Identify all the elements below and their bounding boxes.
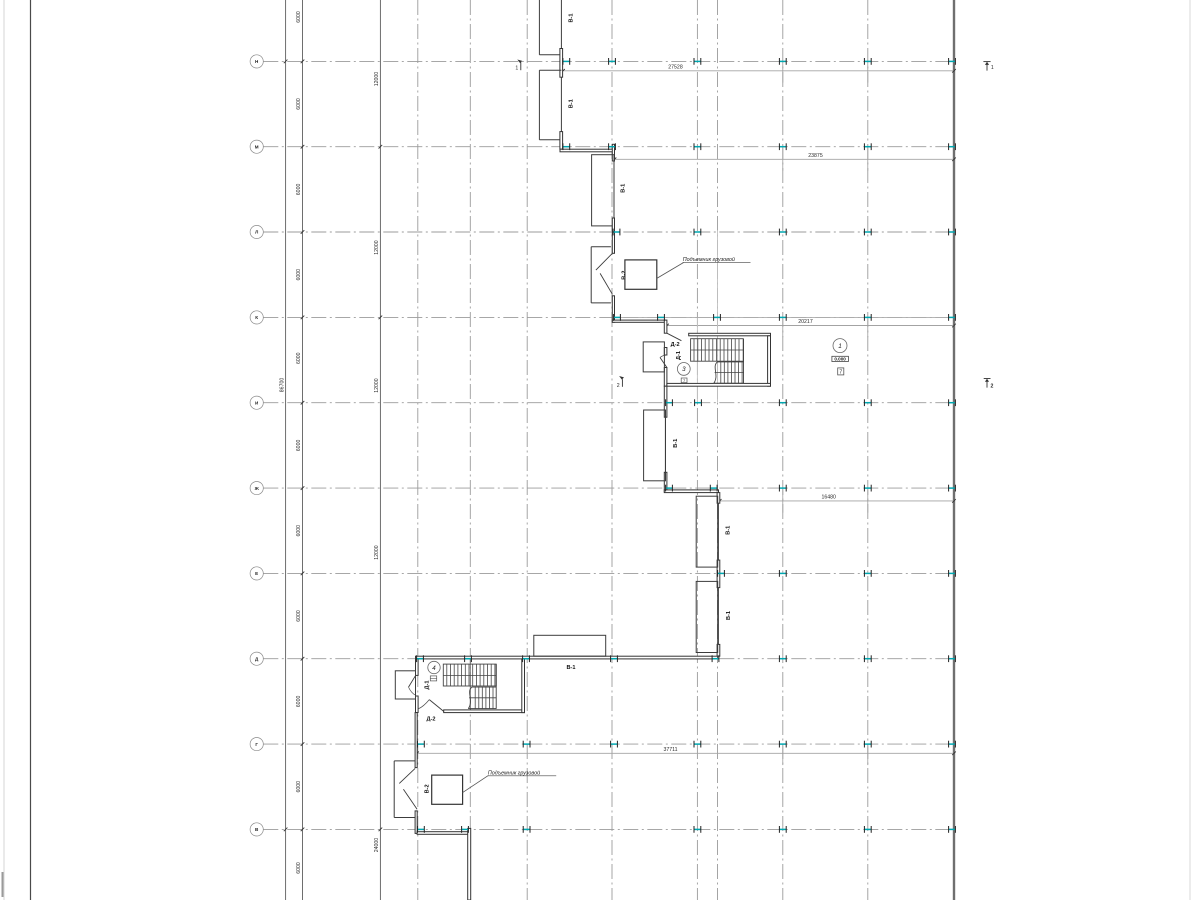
svg-text:6000: 6000 xyxy=(296,440,302,452)
svg-text:6000: 6000 xyxy=(296,352,302,364)
svg-text:16480: 16480 xyxy=(821,494,836,500)
svg-text:Д-1: Д-1 xyxy=(425,681,431,690)
svg-text:К: К xyxy=(255,315,258,320)
svg-text:20217: 20217 xyxy=(798,319,813,325)
svg-text:В-1: В-1 xyxy=(569,13,575,22)
svg-text:В-2: В-2 xyxy=(425,784,431,793)
svg-text:12000: 12000 xyxy=(374,240,380,255)
svg-text:7: 7 xyxy=(839,370,842,376)
svg-text:27528: 27528 xyxy=(668,64,683,70)
svg-text:3: 3 xyxy=(682,366,686,373)
svg-text:2: 2 xyxy=(991,383,994,389)
svg-text:Ж: Ж xyxy=(254,486,260,491)
svg-text:4: 4 xyxy=(432,665,436,672)
svg-text:12000: 12000 xyxy=(374,72,380,87)
svg-text:Д-2: Д-2 xyxy=(427,717,436,723)
svg-text:Подъемник грузовой: Подъемник грузовой xyxy=(488,769,540,776)
svg-text:М: М xyxy=(255,144,259,149)
svg-text:6000: 6000 xyxy=(296,525,302,537)
svg-text:6000: 6000 xyxy=(296,184,302,196)
svg-text:24000: 24000 xyxy=(374,838,380,853)
svg-text:6000: 6000 xyxy=(296,11,302,23)
svg-text:В-1: В-1 xyxy=(569,99,575,108)
svg-text:6000: 6000 xyxy=(296,610,302,622)
svg-text:6000: 6000 xyxy=(296,696,302,708)
svg-text:12000: 12000 xyxy=(374,545,380,560)
svg-text:6000: 6000 xyxy=(296,269,302,281)
svg-text:В-1: В-1 xyxy=(620,184,626,193)
svg-text:6000: 6000 xyxy=(296,98,302,110)
svg-text:1: 1 xyxy=(838,343,842,350)
svg-text:В-1: В-1 xyxy=(726,611,732,620)
svg-text:Д-2: Д-2 xyxy=(671,342,680,348)
svg-text:2: 2 xyxy=(617,383,620,389)
svg-text:6000: 6000 xyxy=(296,862,302,874)
svg-text:12000: 12000 xyxy=(374,378,380,393)
svg-text:37711: 37711 xyxy=(663,747,677,753)
svg-text:86700: 86700 xyxy=(279,378,285,393)
svg-text:В-1: В-1 xyxy=(673,439,679,448)
svg-text:Е: Е xyxy=(255,571,258,576)
svg-text:6000: 6000 xyxy=(296,781,302,793)
svg-text:И: И xyxy=(255,400,258,405)
svg-text:В-1: В-1 xyxy=(566,665,575,671)
svg-text:Г: Г xyxy=(255,742,258,747)
svg-text:1: 1 xyxy=(515,65,518,71)
svg-text:В-1: В-1 xyxy=(726,526,732,535)
svg-text:Л: Л xyxy=(255,230,258,235)
svg-text:0.000: 0.000 xyxy=(834,357,846,362)
svg-text:Подъемник грузовой: Подъемник грузовой xyxy=(683,256,735,263)
svg-text:23875: 23875 xyxy=(808,153,823,159)
svg-text:1: 1 xyxy=(991,65,994,71)
svg-text:Д-1: Д-1 xyxy=(676,351,682,360)
